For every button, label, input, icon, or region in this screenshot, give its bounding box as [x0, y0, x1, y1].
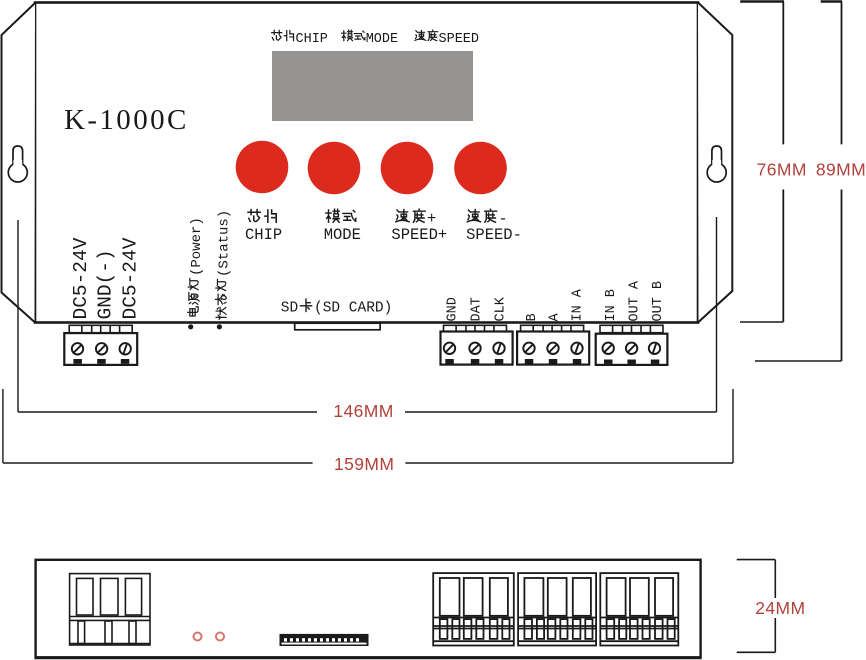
svg-text:OUT A: OUT A [628, 280, 643, 321]
svg-text:146MM: 146MM [333, 401, 393, 421]
svg-text:K-1000C: K-1000C [64, 104, 189, 136]
svg-text:SPEED-: SPEED- [466, 226, 522, 244]
svg-text:24MM: 24MM [755, 598, 805, 618]
svg-text:OUT B: OUT B [651, 281, 666, 322]
svg-text:SPEED: SPEED [439, 32, 480, 47]
svg-text:DAT: DAT [470, 297, 485, 321]
svg-text:DC5-24V: DC5-24V [119, 237, 141, 319]
svg-text:SPEED+: SPEED+ [391, 226, 447, 244]
svg-text:(Status): (Status) [217, 210, 233, 277]
svg-text:A: A [548, 313, 563, 322]
svg-text:CHIP: CHIP [296, 32, 328, 47]
svg-text:IN A: IN A [571, 288, 586, 321]
svg-text:MODE: MODE [366, 32, 398, 47]
svg-text:SD: SD [281, 301, 298, 317]
svg-text:IN B: IN B [604, 289, 619, 321]
svg-text:76MM: 76MM [757, 160, 807, 180]
svg-text:(SD CARD): (SD CARD) [314, 301, 392, 317]
svg-text:CHIP: CHIP [245, 226, 282, 244]
svg-text:MODE: MODE [324, 226, 361, 244]
svg-text:CLK: CLK [494, 296, 509, 321]
svg-text:159MM: 159MM [334, 454, 394, 474]
svg-text:B: B [525, 313, 540, 321]
svg-text:GND: GND [446, 297, 461, 321]
svg-text:89MM: 89MM [816, 160, 866, 180]
svg-text:DC5-24V: DC5-24V [70, 237, 92, 319]
svg-text:GND(-): GND(-) [95, 249, 117, 319]
svg-text:(Power): (Power) [189, 217, 205, 276]
